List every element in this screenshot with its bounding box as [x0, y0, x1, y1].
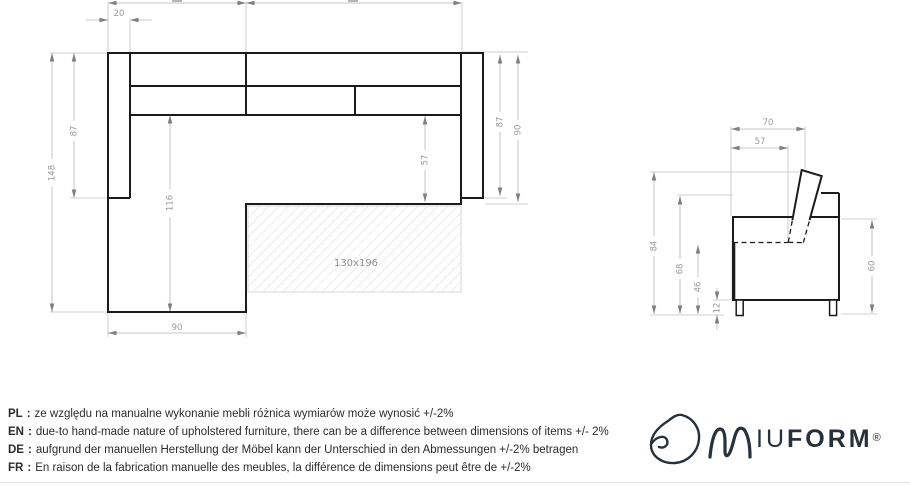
dim-armrest-width: 20	[114, 9, 125, 19]
dim-total-height: 84	[650, 241, 660, 252]
dim-side-depth-right: 90	[514, 125, 524, 136]
sofa-leg	[736, 300, 743, 316]
dim-seat-depth: 57	[421, 155, 431, 166]
dim-leg-height: 12	[713, 303, 723, 314]
note-text: ze względu na manualne wykonanie mebli r…	[35, 408, 454, 420]
side-view-extension-lines	[650, 126, 877, 315]
note-lang: PL	[8, 408, 23, 420]
note-pl: PL:ze względu na manualne wykonanie mebl…	[8, 405, 678, 423]
dim-top-depth: 70	[763, 118, 774, 128]
note-text: aufgrund der manuellen Herstellung der M…	[36, 444, 578, 456]
side-view-dim-labels: 70 57 84 68 46 12 60	[650, 118, 878, 313]
bed-area-label: 130x196	[334, 258, 378, 269]
sofa-leg	[830, 300, 837, 316]
miuform-logo: IUFORM ®	[646, 408, 881, 470]
note-text: due-to hand-made nature of upholstered f…	[36, 426, 609, 438]
dim-chaise-seat-length: 116	[166, 195, 176, 211]
footer-divider	[0, 482, 910, 483]
sofa-dimension-drawing: 20 148 87 116 90 57 87 90 130x196	[0, 0, 910, 400]
note-fr: FR:En raison de la fabrication manuelle …	[8, 459, 678, 477]
technical-drawing-sheet: 20 148 87 116 90 57 87 90 130x196	[0, 0, 910, 490]
note-de: DE:aufgrund der manuellen Herstellung de…	[8, 441, 678, 459]
bean-logo-icon	[646, 411, 704, 467]
hidden-seat-lines	[733, 220, 810, 243]
dim-total-depth: 148	[48, 165, 58, 181]
dim-armrest-length-left: 87	[70, 126, 80, 137]
side-view-drawing: 70 57 84 68 46 12 60	[650, 118, 878, 330]
note-lang: FR	[8, 462, 23, 474]
note-separator: :	[27, 462, 31, 474]
top-view-drawing: 20 148 87 116 90 57 87 90 130x196	[48, 0, 529, 337]
registered-mark: ®	[873, 432, 881, 444]
dim-seat-depth-side: 57	[755, 137, 766, 147]
note-en: EN:due-to hand-made nature of upholstere…	[8, 423, 678, 441]
cutoff-label-remnant	[172, 0, 182, 2]
tolerance-notes: PL:ze względu na manualne wykonanie mebl…	[8, 405, 678, 477]
note-separator: :	[27, 408, 31, 420]
dim-armrest-length-right: 87	[496, 117, 506, 128]
logo-m-icon	[708, 424, 754, 460]
dim-chaise-width: 90	[172, 323, 183, 333]
note-separator: :	[28, 426, 32, 438]
dim-side-height: 60	[868, 261, 878, 272]
bed-area	[248, 206, 461, 292]
note-lang: EN	[8, 426, 24, 438]
note-lang: DE	[8, 444, 24, 456]
logo-text: IUFORM	[756, 425, 873, 454]
logo-wordmark: IUFORM	[756, 425, 873, 454]
dim-seat-height: 46	[694, 282, 704, 293]
dim-back-height: 68	[676, 264, 686, 275]
note-text: En raison de la fabrication manuelle des…	[35, 462, 531, 474]
note-separator: :	[28, 444, 32, 456]
cutoff-label-remnant	[348, 0, 358, 2]
